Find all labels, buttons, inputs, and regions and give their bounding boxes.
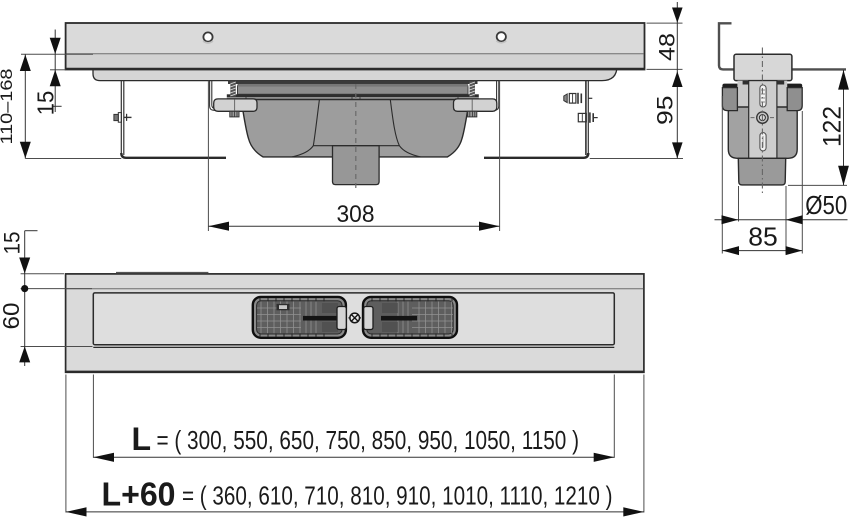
svg-text:110–168: 110–168 bbox=[0, 69, 16, 145]
svg-text:= ( 360, 610, 710, 810, 910, 1: = ( 360, 610, 710, 810, 910, 1010, 1110,… bbox=[182, 483, 613, 511]
svg-text:= ( 300, 550, 650, 750, 850, 9: = ( 300, 550, 650, 750, 850, 950, 1050, … bbox=[157, 427, 580, 455]
svg-text:122: 122 bbox=[819, 106, 847, 147]
svg-text:L+60: L+60 bbox=[102, 476, 176, 513]
svg-text:85: 85 bbox=[748, 221, 778, 251]
svg-text:L: L bbox=[132, 421, 152, 457]
svg-text:15: 15 bbox=[33, 91, 59, 116]
svg-text:48: 48 bbox=[655, 33, 680, 61]
svg-text:95: 95 bbox=[653, 96, 678, 126]
svg-text:60: 60 bbox=[0, 303, 24, 330]
svg-text:15: 15 bbox=[0, 232, 25, 255]
svg-text:308: 308 bbox=[337, 201, 375, 228]
svg-text:Ø50: Ø50 bbox=[805, 192, 847, 220]
